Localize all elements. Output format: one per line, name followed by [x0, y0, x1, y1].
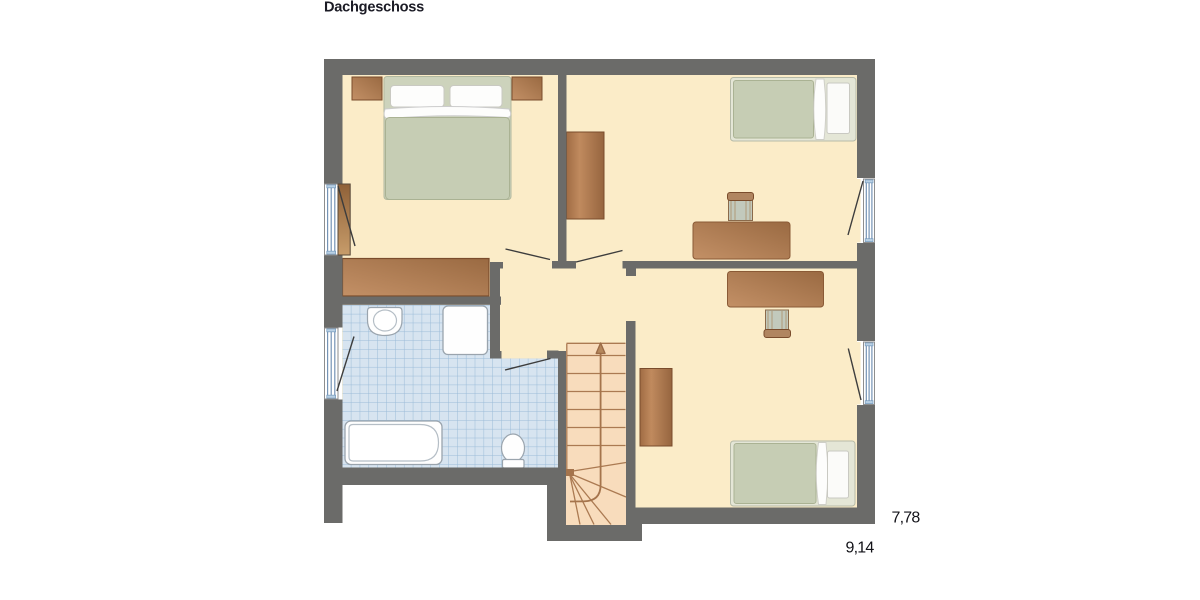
svg-text:Dachgeschoss: Dachgeschoss: [324, 0, 424, 16]
svg-text:9,14: 9,14: [846, 540, 875, 557]
svg-text:7,78: 7,78: [892, 510, 921, 527]
